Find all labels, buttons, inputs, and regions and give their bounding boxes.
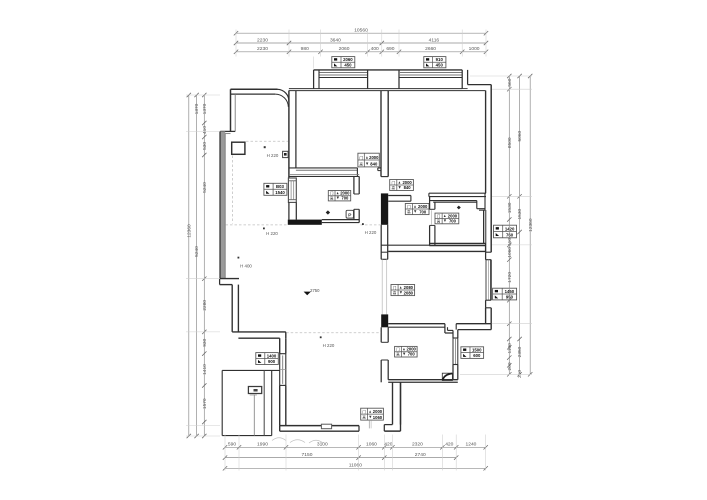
svg-text:1100: 1100 [507, 343, 513, 354]
svg-text:高: 高 [407, 209, 411, 214]
svg-text:门: 门 [396, 347, 400, 352]
svg-text:1990: 1990 [257, 442, 268, 448]
svg-text:高: 高 [362, 415, 366, 420]
svg-text:3640: 3640 [330, 37, 341, 43]
svg-text:2230: 2230 [257, 37, 268, 43]
svg-text:2750: 2750 [310, 288, 320, 293]
svg-text:690: 690 [386, 46, 394, 52]
svg-text:1370: 1370 [202, 103, 208, 114]
svg-text:450: 450 [344, 63, 352, 68]
svg-text:1410: 1410 [202, 364, 208, 375]
svg-text:530: 530 [202, 142, 208, 150]
svg-text:700: 700 [419, 209, 427, 214]
svg-text:200: 200 [507, 362, 513, 370]
svg-text:1060: 1060 [373, 415, 383, 420]
svg-text:12360: 12360 [186, 224, 192, 238]
svg-text:1400: 1400 [267, 353, 277, 358]
svg-text:420: 420 [445, 442, 453, 448]
svg-text:7150: 7150 [302, 452, 313, 458]
svg-text:H 220: H 220 [323, 343, 335, 348]
svg-text:高: 高 [391, 185, 395, 190]
svg-text:700: 700 [449, 219, 457, 224]
svg-text:门: 门 [330, 191, 334, 196]
svg-text:2060: 2060 [343, 57, 353, 62]
svg-text:4116: 4116 [429, 37, 440, 43]
svg-text:410: 410 [202, 126, 208, 134]
svg-text:840: 840 [404, 185, 412, 190]
svg-text:2660: 2660 [425, 46, 436, 52]
svg-text:840: 840 [370, 162, 378, 167]
svg-text:2320: 2320 [412, 442, 423, 448]
svg-text:高: 高 [330, 196, 334, 201]
svg-text:门: 门 [437, 213, 441, 218]
svg-text:2740: 2740 [415, 452, 426, 458]
svg-text:2080: 2080 [404, 290, 414, 295]
svg-text:门: 门 [407, 204, 411, 209]
svg-text:5240: 5240 [202, 182, 208, 193]
svg-text:2080: 2080 [404, 285, 414, 290]
svg-text:10560: 10560 [354, 28, 368, 34]
svg-text:门: 门 [362, 409, 366, 414]
svg-text:门: 门 [391, 180, 395, 185]
svg-text:门: 门 [359, 155, 363, 160]
svg-text:420: 420 [384, 442, 392, 448]
svg-text:1060: 1060 [507, 247, 513, 258]
svg-text:H 220: H 220 [365, 230, 377, 235]
svg-text:12360: 12360 [528, 218, 534, 232]
svg-text:930: 930 [202, 338, 208, 346]
svg-text:B03: B03 [276, 184, 284, 189]
svg-text:1450: 1450 [505, 289, 515, 294]
svg-text:2000: 2000 [373, 409, 383, 414]
svg-text:1370: 1370 [194, 103, 200, 114]
svg-text:1240: 1240 [466, 442, 477, 448]
svg-text:2230: 2230 [257, 46, 268, 52]
svg-text:1420: 1420 [505, 226, 515, 231]
svg-text:高: 高 [396, 352, 400, 357]
svg-text:2000: 2000 [369, 155, 379, 160]
svg-text:1060: 1060 [366, 442, 377, 448]
svg-text:760: 760 [506, 233, 514, 238]
svg-text:590: 590 [228, 442, 236, 448]
svg-text:3100: 3100 [317, 442, 328, 448]
svg-text:1540: 1540 [275, 190, 285, 195]
svg-text:2000: 2000 [402, 180, 412, 185]
svg-text:1720: 1720 [507, 272, 513, 283]
svg-text:600: 600 [473, 353, 481, 358]
svg-text:700: 700 [341, 196, 349, 201]
svg-text:2000: 2000 [418, 204, 428, 209]
svg-text:700: 700 [408, 352, 416, 357]
svg-text:5240: 5240 [194, 246, 200, 257]
svg-text:950: 950 [506, 295, 514, 300]
svg-text:门: 门 [393, 285, 397, 290]
svg-text:400: 400 [371, 46, 379, 52]
svg-text:310: 310 [517, 370, 523, 378]
svg-text:1570: 1570 [202, 398, 208, 409]
svg-text:900: 900 [268, 359, 276, 364]
svg-text:2280: 2280 [202, 300, 208, 311]
svg-text:1530: 1530 [507, 202, 513, 213]
svg-text:2060: 2060 [339, 46, 350, 52]
svg-text:1500: 1500 [472, 348, 482, 353]
svg-text:2350: 2350 [517, 346, 523, 357]
svg-text:450: 450 [436, 63, 444, 68]
svg-text:高: 高 [437, 218, 441, 223]
svg-text:高: 高 [393, 290, 397, 295]
svg-text:H 400: H 400 [240, 263, 252, 268]
svg-text:H 220: H 220 [266, 231, 278, 236]
svg-text:高: 高 [359, 162, 363, 167]
svg-text:11060: 11060 [349, 463, 363, 469]
svg-text:5060: 5060 [517, 130, 523, 141]
svg-text:H 220: H 220 [267, 153, 279, 158]
svg-text:1530: 1530 [517, 208, 523, 219]
svg-text:1000: 1000 [469, 46, 480, 52]
svg-text:910: 910 [436, 57, 444, 62]
svg-text:560: 560 [507, 78, 513, 86]
svg-text:8500: 8500 [507, 137, 513, 148]
svg-text:980: 980 [301, 46, 309, 52]
